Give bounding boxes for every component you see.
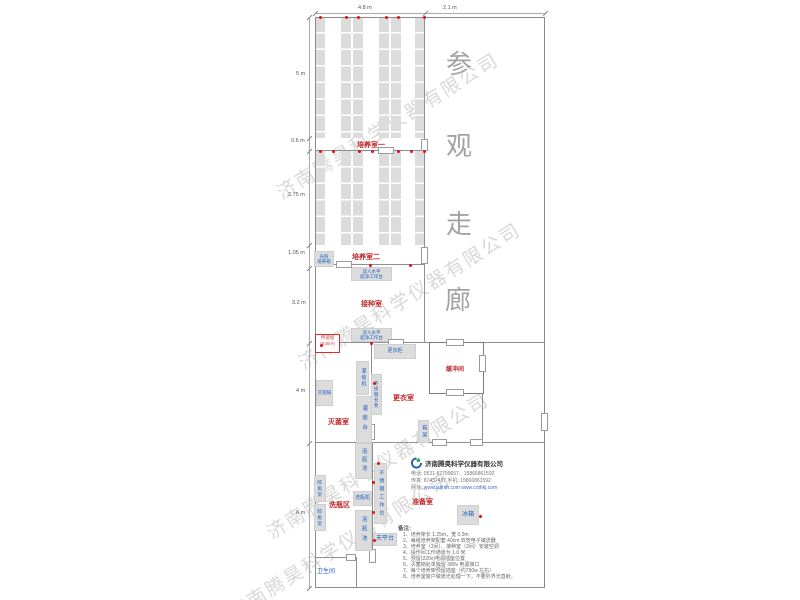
soak-pool-box-1: 泡瓶池 [355, 443, 372, 479]
sterilizer-pot-box: 灭菌锅 [316, 380, 333, 406]
outlet-dot [372, 481, 375, 484]
pass-window-box: 传递窗 (0.6m²) [315, 334, 340, 353]
floor-plan-canvas: 济南腾昊科学仪器有限公司 济南腾昊科学仪器有限公司 济南腾昊科学仪器有限公司 济… [0, 0, 800, 600]
wall-corridor-west [424, 17, 425, 343]
outlet-dot [372, 511, 375, 514]
door-opening [446, 389, 464, 396]
outlet-dot [332, 150, 335, 153]
room-label-sterilization: 灭菌室 [328, 417, 349, 427]
company-website-line: 网址: www.sdjnth.com www.cnthkj.com [411, 484, 497, 491]
door-opening [421, 247, 428, 264]
bottle-rack-box-2: 晾瓶架 [314, 504, 326, 531]
door-opening [541, 413, 548, 431]
corridor-title-char-3: 走 [446, 204, 472, 241]
shoe-rack-box: 鞋架 [418, 420, 429, 443]
door-opening [446, 339, 464, 346]
outlet-dot [320, 344, 323, 347]
soak-pool-box-2: 泡瓶池 [355, 510, 372, 551]
room-label-culture2: 培养室二 [352, 252, 380, 262]
outlet-dot [410, 150, 413, 153]
room-label-inoculation: 接种室 [361, 299, 382, 309]
outlet-dot [423, 16, 426, 19]
door-opening [336, 261, 352, 268]
door-opening [369, 549, 376, 563]
filling-table-box: 灌装台 [356, 396, 372, 443]
outlet-dot [369, 264, 372, 267]
outlet-dot [345, 16, 348, 19]
door-opening [470, 439, 483, 446]
room-label-changing: 更衣室 [393, 393, 414, 403]
dim-label-left-1-05m: 1.05 m [288, 250, 305, 256]
wall-toilet-east [356, 557, 357, 588]
wall-sterilization-south [315, 442, 545, 443]
note-item-8: 8、培养室窗户做遮光处理一下，不要外界光直射。 [403, 573, 516, 580]
company-website-label: 网址: [411, 485, 422, 491]
steel-bench-box: 不锈钢长凳 [371, 374, 382, 415]
dim-label-top-main: 4.8 m [358, 5, 372, 11]
company-name: 济南腾昊科学仪器有限公司 [425, 458, 503, 468]
filling-machine-box: 灌装机 [356, 361, 369, 395]
outlet-dot [397, 150, 400, 153]
room-label-preparation: 准备室 [412, 497, 433, 507]
dim-label-left-3-75m: 3.75 m [288, 192, 305, 198]
bottle-rack-box-1: 晾瓶架 [314, 475, 326, 502]
room-label-buffer: 缓冲间 [446, 364, 464, 373]
corridor-title-char-2: 观 [446, 126, 472, 163]
light-incubator-label-2: 培养箱 [317, 259, 331, 264]
clean-bench-label-2: 超净工作台 [360, 274, 383, 279]
outlet-dot [373, 382, 376, 385]
wardrobe-box: 更衣柜 [374, 344, 416, 359]
company-logo-icon [411, 457, 422, 469]
room-label-toilet: 卫生间 [317, 569, 335, 576]
balance-table-box: 天平台 [373, 533, 397, 546]
clean-bench-label-2: 超净工作台 [360, 335, 383, 340]
dim-label-left-4m: 4 m [296, 388, 305, 394]
clean-bench-box-2: 双人水平 超净工作台 [351, 328, 392, 342]
bottle-washer-box: 洗瓶机 [353, 491, 372, 506]
dimension-line-top [315, 13, 545, 14]
outlet-dot [385, 16, 388, 19]
dimension-line-left [309, 17, 310, 588]
steel-worktable-box: 不锈钢工作台 [374, 463, 387, 524]
company-website-urls: www.sdjnth.com www.cnthkj.com [424, 485, 497, 491]
corridor-title-char-4: 廊 [445, 280, 471, 317]
dim-label-left-5m: 5 m [296, 71, 305, 77]
corridor-title-char-1: 参 [446, 44, 472, 81]
dim-label-top-corridor: 2.1 m [443, 5, 457, 11]
outlet-dot [479, 515, 482, 518]
outlet-dot [371, 150, 374, 153]
outlet-dot [319, 150, 322, 153]
door-opening [479, 355, 486, 372]
outlet-dot [409, 264, 412, 267]
outlet-dot [358, 150, 361, 153]
outlet-dot [423, 150, 426, 153]
door-opening [346, 554, 356, 561]
outlet-dot [397, 16, 400, 19]
company-fax: 传真: 87437487 手机: 15866861592 [411, 477, 491, 484]
dimension-tick [306, 586, 312, 592]
dim-label-left-6m: 6 m [296, 510, 305, 516]
clean-bench-box-1: 双人水平 超净工作台 [351, 267, 392, 281]
door-opening [432, 439, 447, 446]
dimension-tick [542, 11, 548, 17]
room-label-washing-area: 洗瓶区 [329, 500, 350, 510]
dim-label-left-3-2m: 3.2 m [292, 300, 306, 306]
outlet-dot [377, 462, 380, 465]
company-phone: 电话: 0531-87799657、15866861592 [411, 470, 494, 477]
outlet-dot [319, 16, 322, 19]
light-incubator-box: 光照 培养箱 [314, 251, 334, 267]
outlet-dot [373, 539, 376, 542]
outlet-dot [370, 342, 373, 345]
fridge-box: 冰箱 [457, 505, 479, 525]
dim-label-left-0-6m: 0.6 m [291, 138, 305, 144]
room-label-culture1: 培养室一 [357, 140, 385, 150]
outlet-dot [357, 16, 360, 19]
